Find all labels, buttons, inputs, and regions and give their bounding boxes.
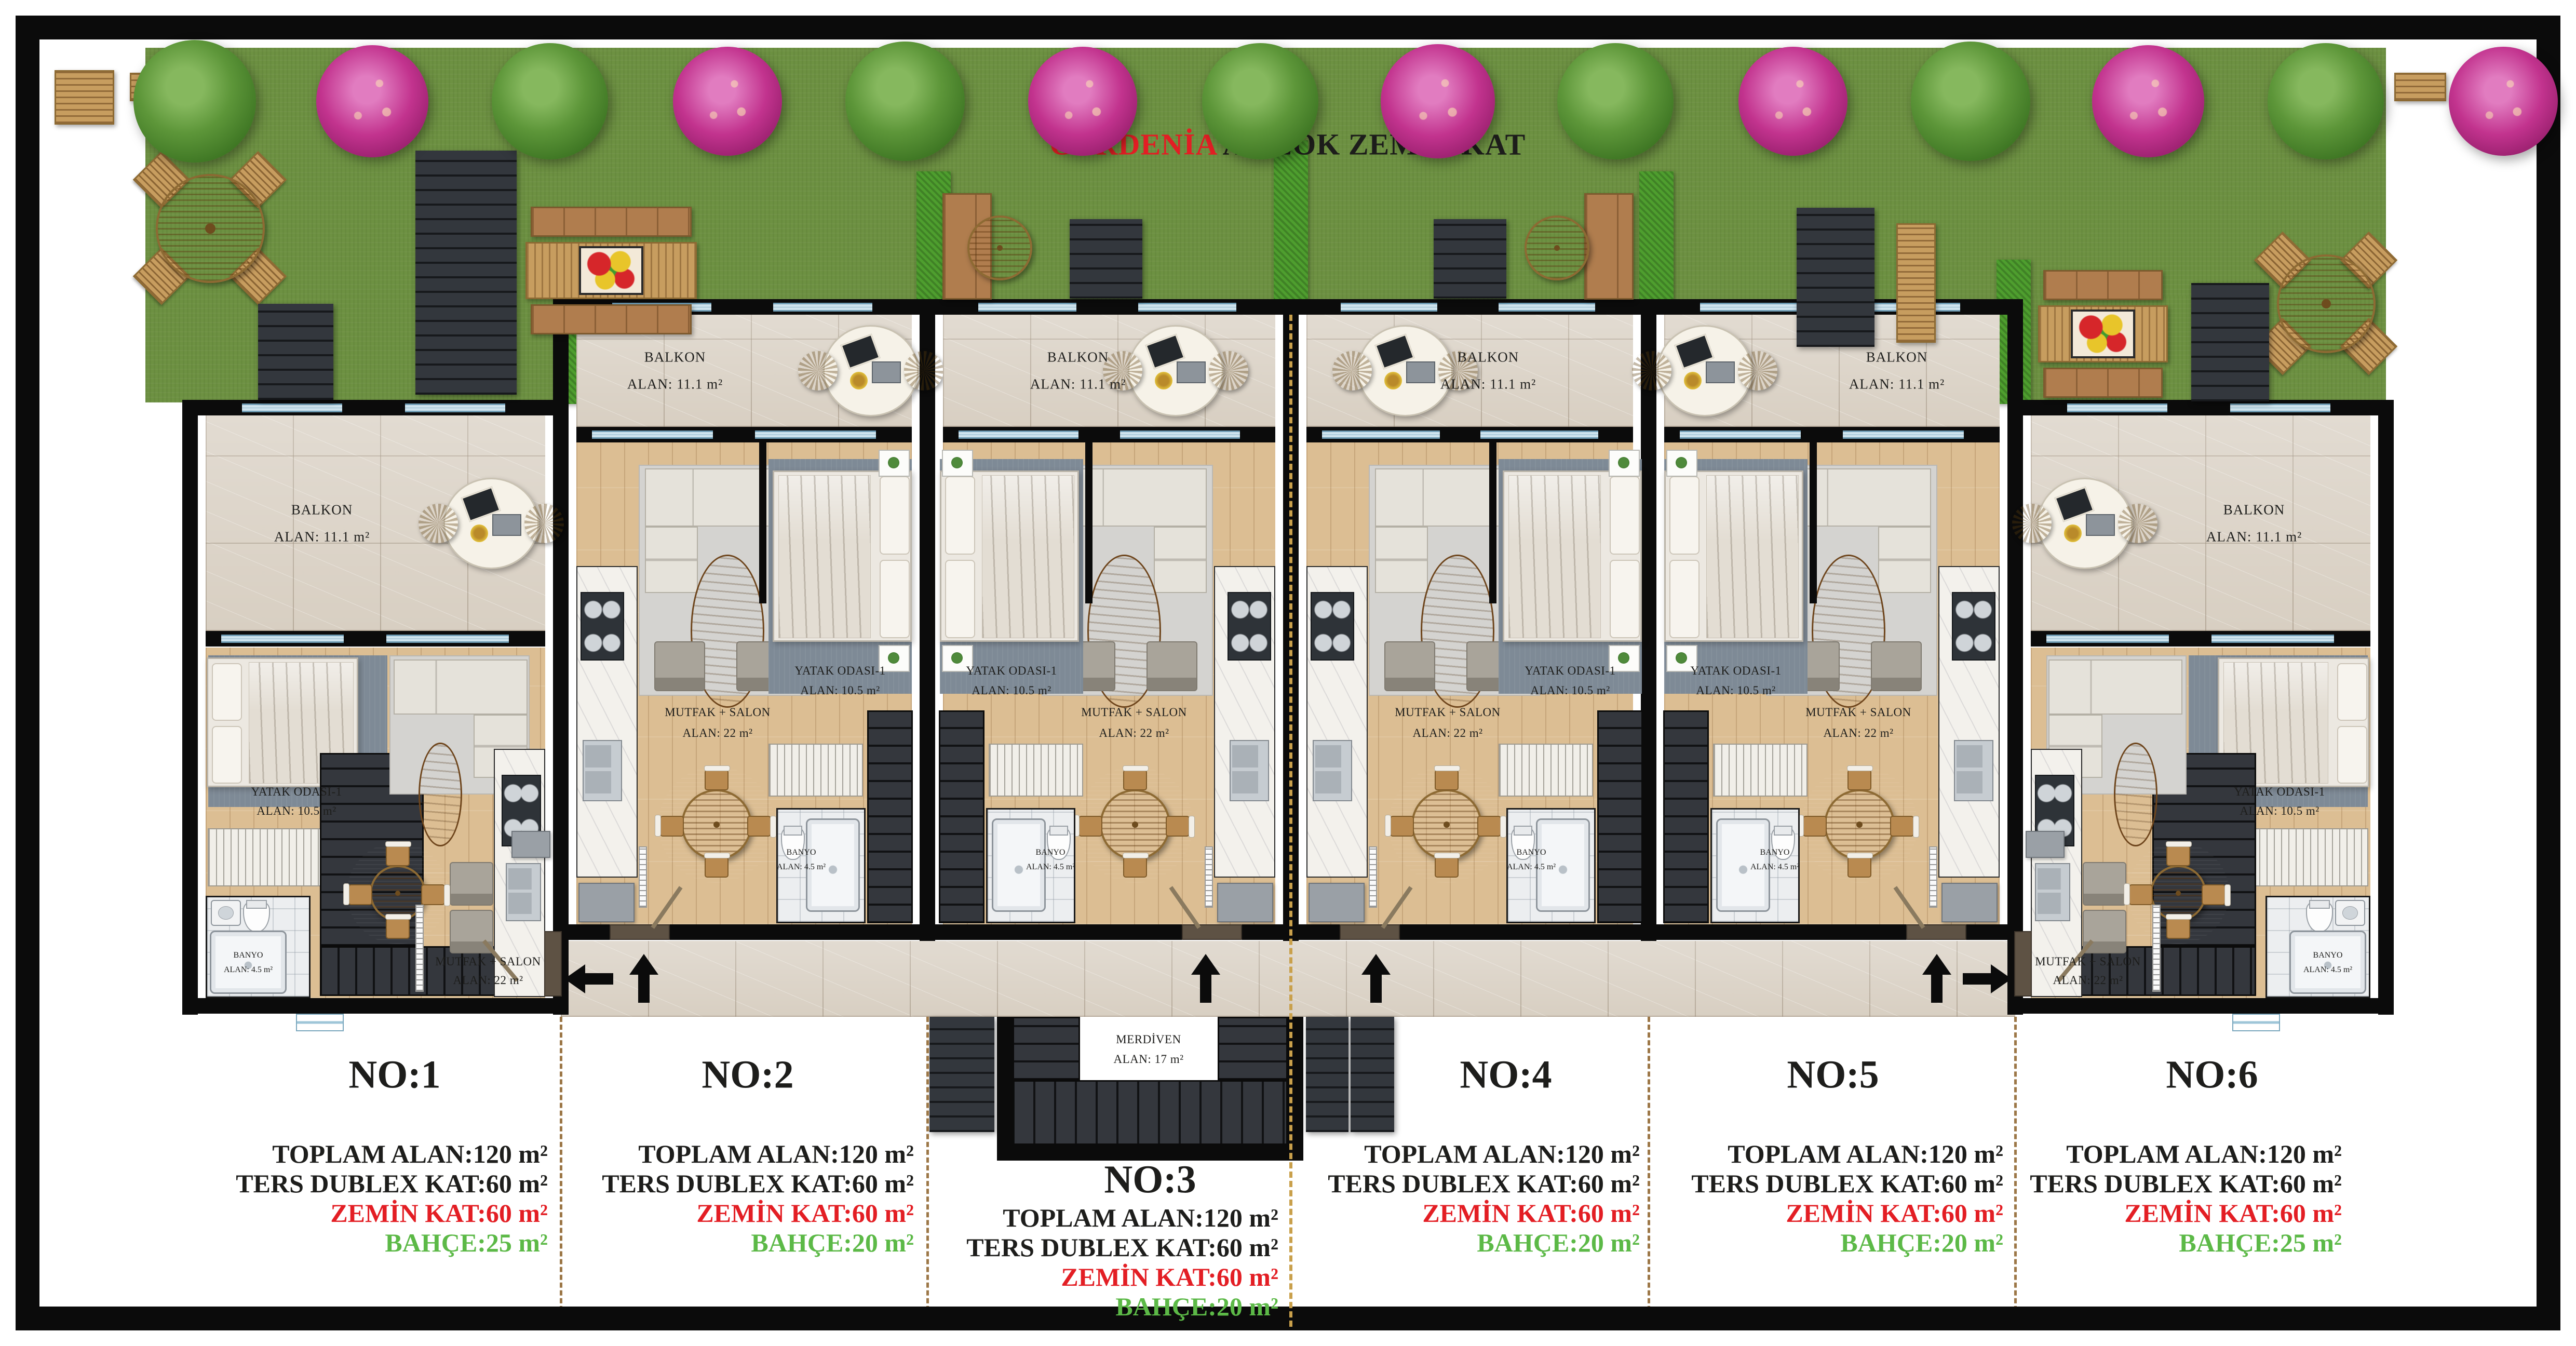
tree-green-icon [1202,43,1318,159]
picnic-bench [531,207,692,237]
unit-6-living-area-label: ALAN: 22 m² [2053,974,2123,987]
unit-3-bedroom-area-label: ALAN: 10.5 m² [972,684,1051,697]
unit-4-info-line-3: ZEMİN KAT:60 m² [1422,1198,1640,1228]
border-frame [16,16,2560,1330]
tree-green-icon [845,42,965,161]
entry-arrow-unit-2-icon [629,954,658,1004]
unit-3-info-line-3: ZEMİN KAT:60 m² [1061,1262,1278,1292]
arrow-head [1922,954,1951,975]
unit-3-number: NO:3 [1104,1157,1196,1203]
tree-pink-icon [673,47,782,156]
garden-steps [1070,219,1142,299]
unit-3-bathroom-label: BANYO [1036,848,1066,857]
balcony-area-label: ALAN: 11.1 m² [2206,529,2302,545]
unit-5-living-label: MUTFAK + SALON [1805,706,1911,719]
tree-green-icon [133,40,256,163]
balcony-area-label: ALAN: 11.1 m² [1030,376,1126,393]
unit-1-info-line-1: TOPLAM ALAN:120 m² [272,1139,548,1169]
unit-1-bathroom-area-label: ALAN: 4.5 m² [224,965,273,975]
balcony-label: BALKON [291,502,353,518]
unit-4-info-line-4: BAHÇE:20 m² [1477,1228,1640,1258]
arrow-stem [1931,974,1943,1003]
unit-5-info-line-1: TOPLAM ALAN:120 m² [1728,1139,2003,1169]
entry-arrow-unit-3-icon [1191,954,1220,1004]
arrow-head [1991,964,2012,993]
stairwell-label: MERDİVEN [1116,1033,1181,1046]
arrow-stem [1200,974,1211,1003]
entry-arrow-unit-6-icon [1962,964,2012,993]
garden-round-table [967,216,1032,280]
tree-pink-icon [1381,44,1495,158]
tree-pink-icon [316,45,428,157]
unit-4-bathroom-label: BANYO [1517,848,1546,857]
picnic-bench [531,304,692,334]
garden-round-table [2277,254,2376,353]
unit-3-living-label: MUTFAK + SALON [1081,706,1187,719]
unit-2-info-line-2: TERS DUBLEX KAT:60 m² [602,1168,914,1199]
unit-4-bathroom-area-label: ALAN: 4.5 m² [1507,863,1556,872]
unit-6-info-line-2: TERS DUBLEX KAT:60 m² [2030,1168,2342,1199]
unit-2-number: NO:2 [702,1053,793,1098]
unit-5-living-area-label: ALAN: 22 m² [1823,726,1893,740]
garden-steps [1797,208,1874,347]
unit-3-door-threshold [1183,925,1241,939]
tree-green-icon [1911,42,2030,161]
balcony-area-label: ALAN: 11.1 m² [1849,376,1945,393]
arrow-stem [1370,974,1382,1003]
arrow-stem [638,974,650,1003]
center-boundary-line [1289,315,1292,1327]
picnic-bench [2043,270,2163,300]
unit-5-door-threshold [1907,925,1965,939]
unit-4-info-line-1: TOPLAM ALAN:120 m² [1364,1139,1640,1169]
picnic-bench [2043,368,2163,398]
fruit-tray-icon [2071,309,2135,358]
balcony-label: BALKON [644,349,706,366]
unit-4-door-threshold [1341,925,1399,939]
arrow-stem [584,973,613,985]
unit-2-info-line-4: BAHÇE:20 m² [751,1228,914,1258]
unit-6-bedroom-label: YATAK ODASI-1 [2234,785,2325,799]
unit-3-info-line-2: TERS DUBLEX KAT:60 m² [966,1232,1278,1262]
unit-1-living-area-label: ALAN: 22 m² [453,974,523,987]
unit-2-bedroom-area-label: ALAN: 10.5 m² [800,684,880,697]
unit-4-bedroom-area-label: ALAN: 10.5 m² [1530,684,1610,697]
garden-round-table [156,174,265,283]
unit-1-info-line-2: TERS DUBLEX KAT:60 m² [236,1168,548,1199]
floor-plan-canvas: BALKONALAN: 11.1 m²YATAK ODASI-1ALAN: 10… [0,0,2576,1346]
garden-steps [258,304,333,400]
unit-6-door-threshold [2015,932,2031,995]
unit-5-info-line-2: TERS DUBLEX KAT:60 m² [1691,1168,2003,1199]
balcony-label: BALKON [1866,349,1928,366]
unit-5-bedroom-area-label: ALAN: 10.5 m² [1696,684,1775,697]
unit-2-door-threshold [611,925,669,939]
unit-2-info-line-1: TOPLAM ALAN:120 m² [638,1139,914,1169]
arrow-head [1191,954,1220,975]
unit-1-living-label: MUTFAK + SALON [435,955,541,968]
unit-1-bathroom-label: BANYO [234,951,263,960]
unit-6-bathroom-label: BANYO [2313,951,2343,960]
tree-pink-icon [1028,47,1137,156]
unit-6-bedroom-area-label: ALAN: 10.5 m² [2240,804,2319,818]
unit-3-bathroom-area-label: ALAN: 4.5 m² [1026,863,1075,872]
stairwell-area-label: ALAN: 17 m² [1113,1053,1183,1066]
balcony-area-label: ALAN: 11.1 m² [1440,376,1536,393]
unit-3-bedroom-label: YATAK ODASI-1 [966,664,1057,678]
entry-arrow-unit-4-icon [1361,954,1391,1004]
garden-trellis [1896,223,1936,343]
unit-6-living-label: MUTFAK + SALON [2035,955,2141,968]
unit-2-living-area-label: ALAN: 22 m² [682,726,752,740]
garden-steps [415,151,517,395]
unit-2-bathroom-area-label: ALAN: 4.5 m² [777,863,826,872]
unit-4-bedroom-label: YATAK ODASI-1 [1525,664,1615,678]
unit-5-bathroom-label: BANYO [1760,848,1790,857]
garden-round-table [1525,216,1589,280]
unit-2-living-label: MUTFAK + SALON [665,706,771,719]
unit-2-bathroom-label: BANYO [787,848,816,857]
unit-1-info-line-3: ZEMİN KAT:60 m² [330,1198,548,1228]
unit-6-number: NO:6 [2166,1053,2258,1098]
unit-1-door-threshold [545,932,561,995]
unit-1-bedroom-label: YATAK ODASI-1 [251,785,342,799]
unit-5-bedroom-label: YATAK ODASI-1 [1690,664,1781,678]
garden-bench [1584,193,1634,300]
garden-steps [1434,219,1506,299]
unit-5-number: NO:5 [1787,1053,1879,1098]
unit-4-info-line-2: TERS DUBLEX KAT:60 m² [1328,1168,1640,1199]
unit-4-living-label: MUTFAK + SALON [1395,706,1501,719]
tree-pink-icon [2449,47,2558,156]
unit-6-info-line-3: ZEMİN KAT:60 m² [2124,1198,2342,1228]
tree-pink-icon [2092,45,2204,157]
arrow-head [1361,954,1391,975]
unit-1-info-line-4: BAHÇE:25 m² [385,1228,548,1258]
unit-3-living-area-label: ALAN: 22 m² [1099,726,1169,740]
arrow-stem [1963,973,1992,985]
unit-6-info-line-1: TOPLAM ALAN:120 m² [2066,1139,2342,1169]
unit-5-info-line-4: BAHÇE:20 m² [1840,1228,2003,1258]
tree-green-icon [1557,43,1674,159]
arrow-head [629,954,658,975]
balcony-label: BALKON [1047,349,1109,366]
unit-4-living-area-label: ALAN: 22 m² [1412,726,1482,740]
unit-6-bathroom-area-label: ALAN: 4.5 m² [2303,965,2352,975]
garden-steps [2191,283,2269,401]
tree-green-icon [2268,43,2384,159]
balcony-label: BALKON [2223,502,2285,518]
entry-arrow-unit-1-icon [564,964,614,993]
unit-6-info-line-4: BAHÇE:25 m² [2179,1228,2342,1258]
unit-2-info-line-3: ZEMİN KAT:60 m² [696,1198,914,1228]
unit-5-info-line-3: ZEMİN KAT:60 m² [1786,1198,2003,1228]
unit-3-info-line-1: TOPLAM ALAN:120 m² [1003,1203,1278,1233]
balcony-area-label: ALAN: 11.1 m² [627,376,723,393]
unit-4-number: NO:4 [1460,1053,1552,1098]
tree-green-icon [492,43,608,159]
tree-pink-icon [1738,47,1847,156]
fruit-tray-icon [579,246,643,295]
unit-2-bedroom-label: YATAK ODASI-1 [794,664,885,678]
unit-5-bathroom-area-label: ALAN: 4.5 m² [1750,863,1799,872]
unit-3-info-line-4: BAHÇE:20 m² [1115,1291,1278,1322]
unit-1-number: NO:1 [348,1053,440,1098]
balcony-label: BALKON [1458,349,1519,366]
arrow-head [564,964,585,993]
unit-1-bedroom-area-label: ALAN: 10.5 m² [257,804,336,818]
balcony-area-label: ALAN: 11.1 m² [274,529,370,545]
entry-arrow-unit-5-icon [1922,954,1951,1004]
